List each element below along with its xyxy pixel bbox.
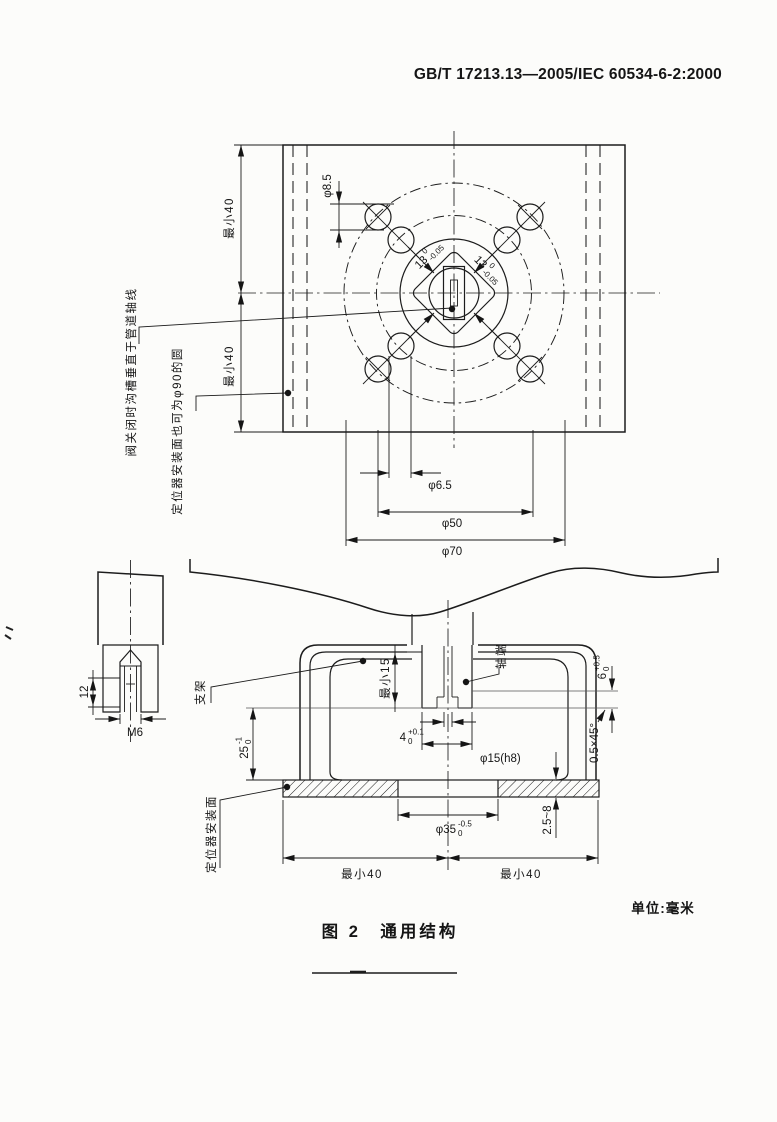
shaft-dia-label: φ15(h8) bbox=[480, 753, 521, 765]
svg-text:-1: -1 bbox=[235, 736, 244, 744]
slot4-label: 4 +0.1 0 bbox=[400, 728, 425, 747]
front-view: 12 M6 bbox=[79, 558, 718, 881]
dim-25: 25 -1 0 bbox=[235, 708, 286, 780]
svg-text:-0.05: -0.05 bbox=[480, 268, 500, 288]
flange-thk-label: 2.5~8 bbox=[542, 805, 554, 834]
figure-drawing: GB/T 17213.13—2005/IEC 60534-6-2:2000 bbox=[0, 0, 777, 1122]
figure-caption: 图 2 通用结构 bbox=[322, 921, 459, 941]
square-dim-right-label: 13 0 -0.05 bbox=[470, 251, 507, 288]
svg-text:0: 0 bbox=[408, 737, 413, 746]
dim25-label: 25 -1 0 bbox=[235, 736, 254, 758]
standard-document-page: GB/T 17213.13—2005/IEC 60534-6-2:2000 bbox=[0, 0, 777, 1122]
base-flange bbox=[283, 780, 599, 797]
note-bracket: 支架 bbox=[194, 658, 366, 705]
chamfer-label: 0.5×45° bbox=[589, 723, 601, 763]
hole-dia-label: φ8.5 bbox=[322, 174, 334, 197]
centerlines-top bbox=[238, 131, 660, 448]
svg-text:0: 0 bbox=[458, 829, 463, 838]
reference-lines bbox=[246, 691, 618, 708]
thread-label: M6 bbox=[127, 727, 143, 739]
svg-text:0: 0 bbox=[244, 739, 253, 744]
phi50-label: φ50 bbox=[442, 518, 462, 530]
svg-text:-0.5: -0.5 bbox=[458, 820, 472, 829]
dim-shaft-dia: φ15(h8) bbox=[422, 712, 521, 765]
dim-diameters-bottom: φ6.5 φ50 φ70 bbox=[346, 356, 565, 558]
units-note: 单位:毫米 bbox=[631, 900, 695, 916]
note-shaft-end: 轴端 bbox=[463, 643, 508, 685]
actuator-bottom-outline bbox=[190, 558, 718, 616]
dim-chamfer: 0.5×45° bbox=[589, 710, 605, 763]
svg-text:φ35: φ35 bbox=[436, 824, 456, 836]
document-header: GB/T 17213.13—2005/IEC 60534-6-2:2000 bbox=[414, 66, 722, 83]
left-boss bbox=[98, 560, 163, 742]
phi65-label: φ6.5 bbox=[428, 480, 451, 492]
min15-label: 最小15 bbox=[379, 657, 392, 699]
svg-text:+0.5: +0.5 bbox=[593, 655, 602, 671]
bracket-label: 支架 bbox=[194, 679, 207, 705]
dim-12: 12 bbox=[79, 670, 120, 715]
dim-min15: 最小15 bbox=[379, 645, 422, 712]
min40-upper-label: 最小40 bbox=[223, 197, 236, 239]
min40-left-label: 最小40 bbox=[341, 868, 383, 881]
note-mount-face: 定位器安装面 bbox=[204, 784, 290, 873]
mount-note-label: 定位器安装面也可为φ90的圆 bbox=[170, 347, 184, 515]
svg-text:-0.05: -0.05 bbox=[427, 243, 447, 263]
min40-right-label: 最小40 bbox=[500, 868, 542, 881]
dim-min40-vertical: 最小40 最小40 bbox=[223, 145, 284, 432]
svg-text:25: 25 bbox=[239, 746, 251, 759]
dim-slot4: 4 +0.1 0 bbox=[400, 712, 476, 746]
mount-face-label: 定位器安装面 bbox=[204, 795, 218, 873]
svg-text:6: 6 bbox=[597, 673, 609, 679]
scan-artifact bbox=[5, 627, 13, 639]
spigot-label: φ35 -0.5 0 bbox=[436, 820, 473, 839]
phi70-label: φ70 bbox=[442, 546, 462, 558]
svg-text:0: 0 bbox=[602, 666, 611, 671]
svg-text:4: 4 bbox=[400, 732, 407, 744]
top-view: φ8.5 最小40 最小40 13 0 -0.05 13 0 bbox=[124, 131, 660, 558]
groove-note-label: 阀关闭时沟槽垂直于管道轴线 bbox=[124, 288, 138, 457]
dim12-label: 12 bbox=[79, 686, 91, 699]
caption-underline bbox=[312, 972, 457, 973]
dim-hole-dia: φ8.5 bbox=[322, 174, 394, 248]
min40-lower-label: 最小40 bbox=[223, 345, 236, 387]
shaft-end-label: 轴端 bbox=[494, 643, 508, 669]
